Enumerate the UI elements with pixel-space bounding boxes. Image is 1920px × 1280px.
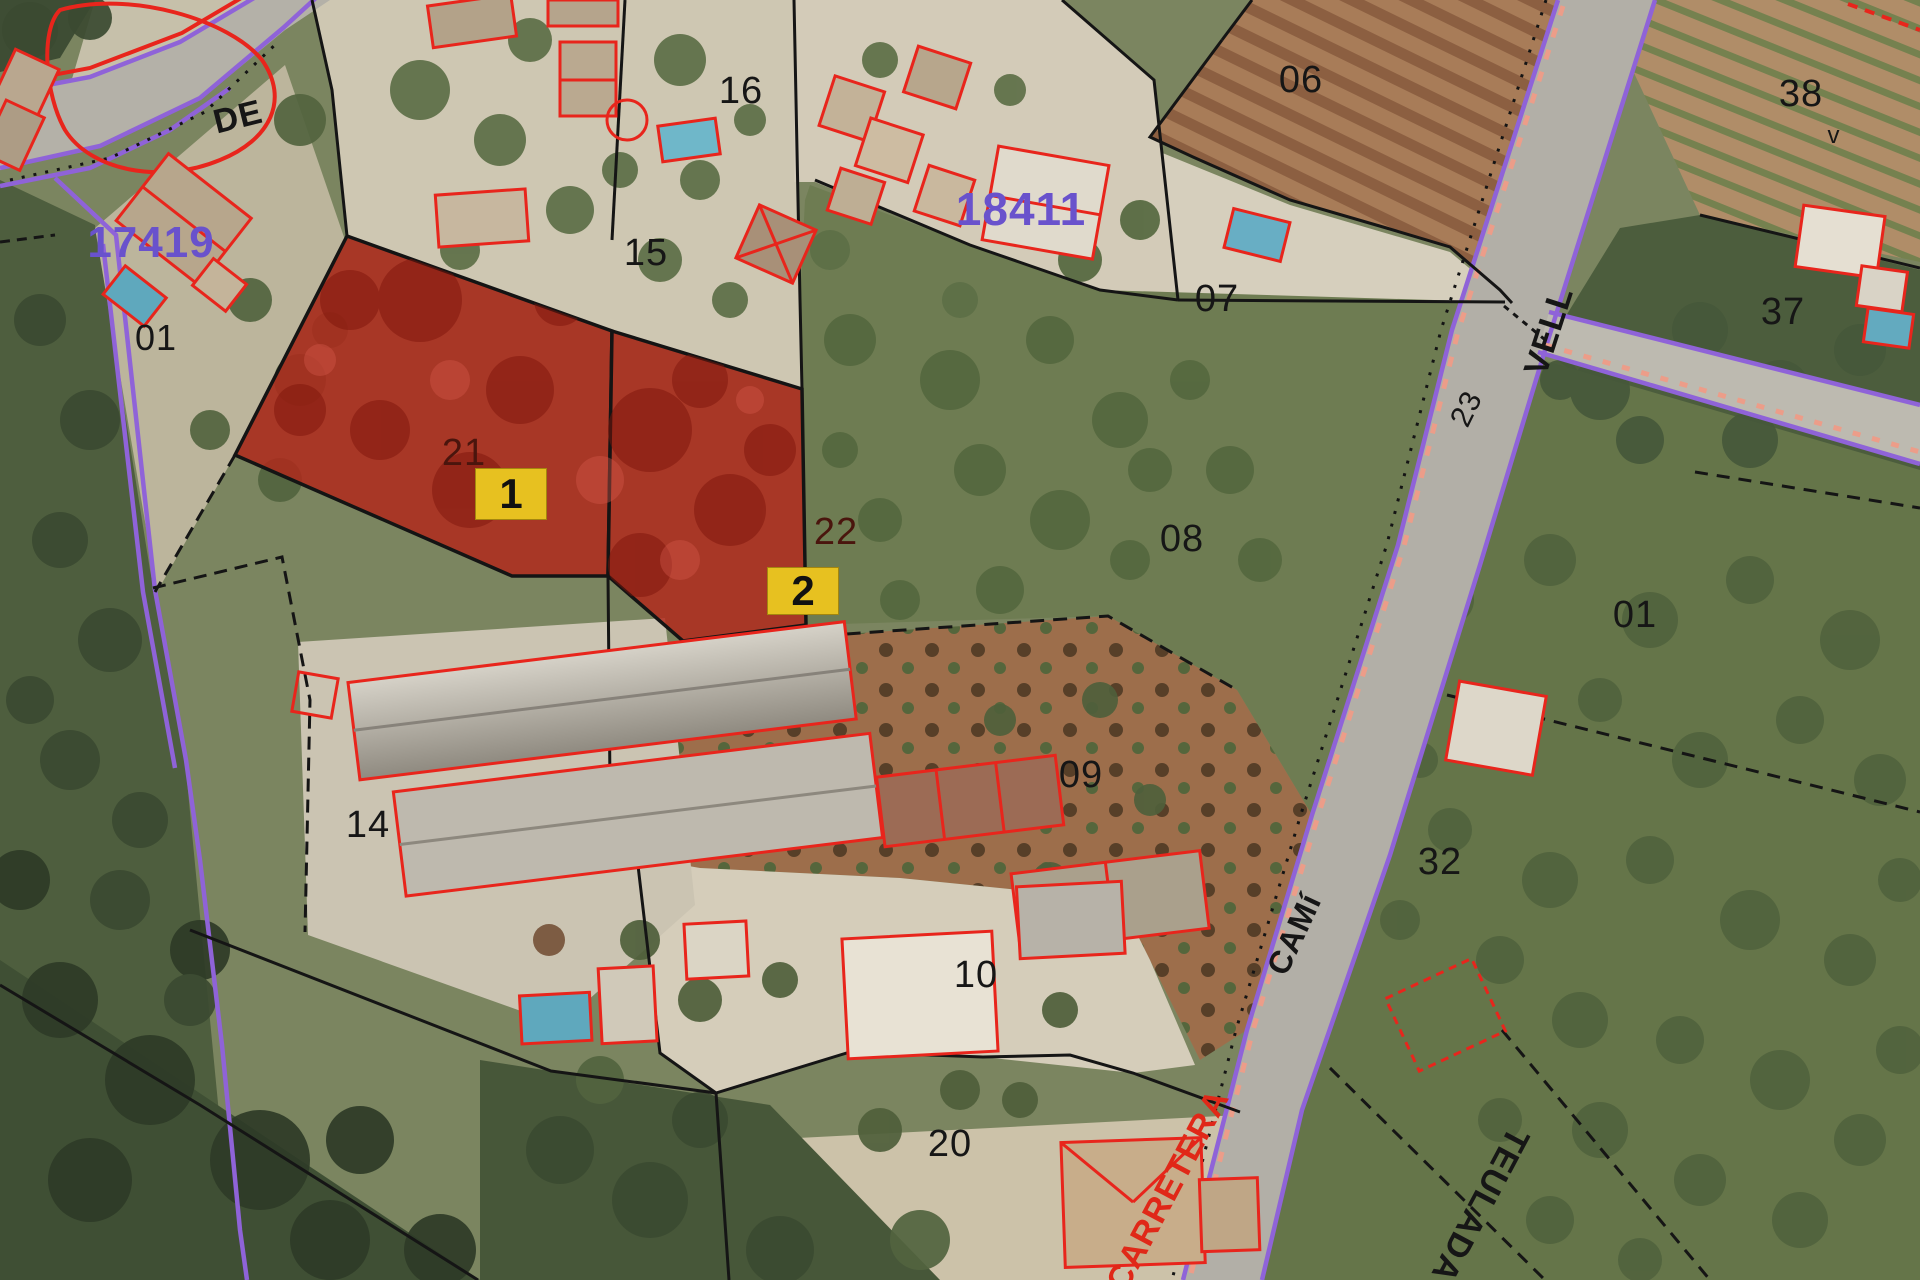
zone-code-18411: 18411 bbox=[956, 186, 1086, 232]
cadastral-map-canvas[interactable]: 16 15 06 07 08 09 10 14 20 32 37 38 v 01… bbox=[0, 0, 1920, 1280]
parcel-label-01-left: 01 bbox=[135, 320, 177, 356]
parcel-label-01-right: 01 bbox=[1613, 596, 1657, 634]
parcel-label-20: 20 bbox=[928, 1125, 972, 1163]
parcel-label-38: 38 bbox=[1779, 75, 1823, 113]
parcel-label-32: 32 bbox=[1418, 843, 1462, 881]
parcel-label-15: 15 bbox=[624, 234, 668, 272]
zone-code-17419: 17419 bbox=[87, 221, 214, 265]
parcel-label-10: 10 bbox=[954, 956, 998, 994]
selection-badge-1[interactable]: 1 bbox=[475, 468, 547, 520]
parcel-label-21: 21 bbox=[442, 434, 486, 472]
parcel-label-09: 09 bbox=[1059, 756, 1103, 794]
parcel-label-22: 22 bbox=[814, 513, 858, 551]
parcel-label-16: 16 bbox=[719, 72, 763, 110]
selection-badge-2[interactable]: 2 bbox=[767, 567, 839, 615]
parcel-label-14: 14 bbox=[346, 806, 390, 844]
parcel-label-38v: v bbox=[1828, 124, 1841, 148]
parcel-label-06: 06 bbox=[1279, 61, 1323, 99]
parcel-label-07: 07 bbox=[1195, 280, 1239, 318]
parcel-label-37: 37 bbox=[1761, 293, 1805, 331]
parcel-label-08: 08 bbox=[1160, 520, 1204, 558]
